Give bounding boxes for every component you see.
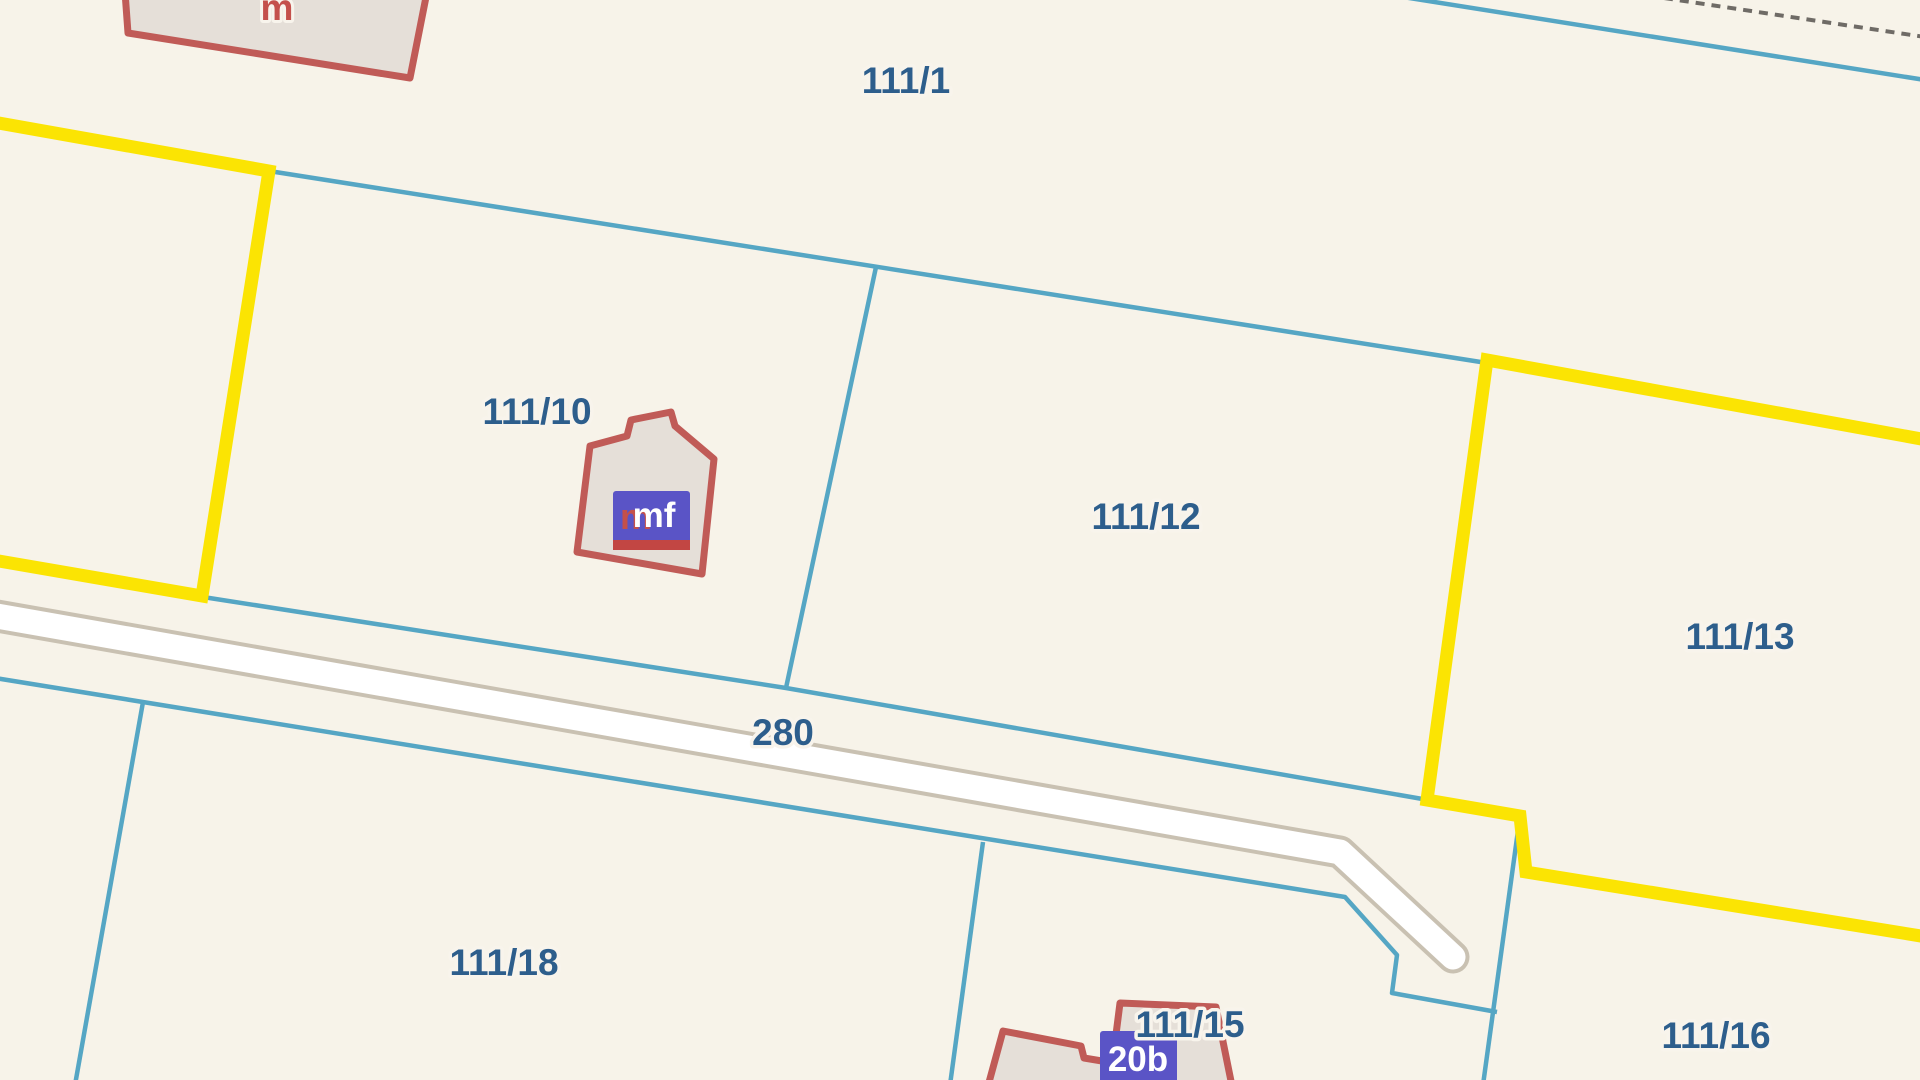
building-badge-mf-label: mf [633, 496, 676, 535]
cadastral-map-canvas[interactable]: mmmf20b111/1111/10111/12111/13280111/181… [0, 0, 1920, 1080]
parcel-label-111-15[interactable]: 111/15 [1135, 1004, 1244, 1045]
building-badge-mf-stripe [613, 540, 690, 550]
parcel-label-111-1[interactable]: 111/1 [862, 60, 951, 101]
building-label-m: m [261, 0, 294, 28]
parcel-label-111-12[interactable]: 111/12 [1091, 496, 1200, 537]
road-label-280[interactable]: 280 [752, 712, 814, 753]
parcel-label-111-13[interactable]: 111/13 [1685, 616, 1794, 657]
parcel-label-111-10[interactable]: 111/10 [482, 391, 591, 432]
parcel-label-111-16[interactable]: 111/16 [1661, 1015, 1770, 1056]
map-background [0, 0, 1920, 1080]
building-badge-20b-label: 20b [1108, 1040, 1168, 1079]
parcel-label-111-18[interactable]: 111/18 [449, 942, 558, 983]
